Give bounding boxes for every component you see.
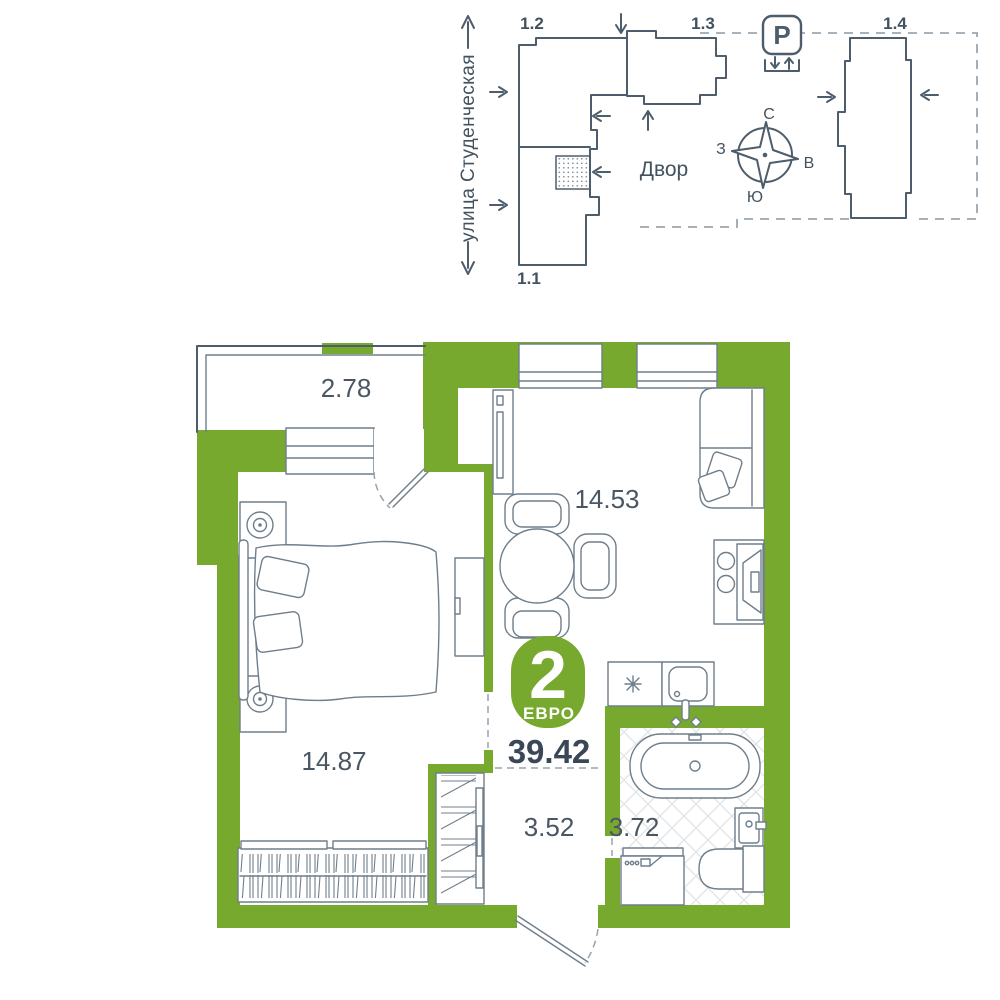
balcony-area-label: 2.78 (321, 373, 372, 403)
dining-table (500, 529, 574, 603)
bathroom-sink (735, 808, 766, 848)
badge-rooms-count: 2 (529, 637, 567, 713)
dining-chair (574, 534, 616, 598)
bathtub (630, 734, 760, 798)
dining-chair (505, 598, 569, 638)
hallway-closet (436, 773, 484, 904)
building-label-1-4: 1.4 (883, 14, 907, 33)
plot-boundary-dashed-left (640, 219, 853, 227)
building-1-3-outline (627, 31, 726, 104)
street: улица Студенческая (458, 16, 479, 274)
apartment-type-badge: 2 ЕВРО (511, 636, 585, 728)
kitchen-window-2 (637, 344, 717, 388)
building-label-1-1: 1.1 (517, 269, 541, 288)
compass-icon: С В Ю З (716, 106, 814, 206)
badge-type-label: ЕВРО (523, 704, 575, 723)
parking-icon: P (763, 16, 801, 71)
bedroom-dresser (455, 558, 484, 656)
compass-west-label: З (716, 141, 726, 158)
kitchen-counter-sink-unit (714, 540, 764, 624)
balcony-glazing-inner (206, 355, 425, 432)
dining-chair (505, 494, 569, 534)
entrance-door (515, 916, 598, 966)
bedroom-area-label: 14.87 (301, 746, 366, 776)
apartment-location-marker (556, 156, 590, 189)
compass-south-label: Ю (747, 189, 763, 206)
street-name-label: улица Студенческая (458, 54, 479, 242)
washing-machine (621, 848, 684, 905)
kitchen-area-label: 14.53 (574, 484, 639, 514)
total-area-label: 39.42 (508, 733, 591, 770)
apartment-plan: 2.78 14.53 14.87 3.52 3.72 2 ЕВРО 39.42 (197, 342, 790, 966)
balcony-door-opening (374, 429, 424, 473)
toilet (699, 846, 764, 892)
street-arrow-up-icon (462, 16, 474, 48)
parking-letter: P (773, 20, 790, 50)
parking-entry-arrows-icon (765, 57, 799, 71)
balcony-glazing-outer (197, 346, 425, 432)
street-arrow-down-icon (462, 242, 474, 274)
site-plan: улица Студенческая 1.2 1.3 1.1 1.4 Двор … (458, 14, 977, 288)
building-1-4-outline (838, 38, 911, 218)
bedroom-balcony-window (286, 428, 374, 474)
bathroom-area-label: 3.72 (609, 812, 660, 842)
building-label-1-3: 1.3 (691, 14, 715, 33)
building-1-2-1-1-outline (519, 38, 627, 265)
kitchen-window-1 (519, 344, 602, 388)
building-label-1-2: 1.2 (520, 14, 544, 33)
tv-cabinet (493, 390, 513, 494)
courtyard-label: Двор (640, 158, 689, 181)
compass-north-label: С (763, 106, 775, 123)
floorplan-image: улица Студенческая 1.2 1.3 1.1 1.4 Двор … (0, 0, 1000, 1000)
balcony-door (374, 469, 428, 508)
sofa (697, 388, 764, 508)
floorplan-page: улица Студенческая 1.2 1.3 1.1 1.4 Двор … (0, 0, 1000, 1000)
compass-east-label: В (804, 155, 815, 172)
stove-icon (625, 676, 641, 692)
stove-counter (608, 662, 662, 706)
double-bed (239, 540, 439, 700)
bedroom-wardrobe (238, 841, 428, 902)
hallway-area-label: 3.52 (524, 812, 575, 842)
